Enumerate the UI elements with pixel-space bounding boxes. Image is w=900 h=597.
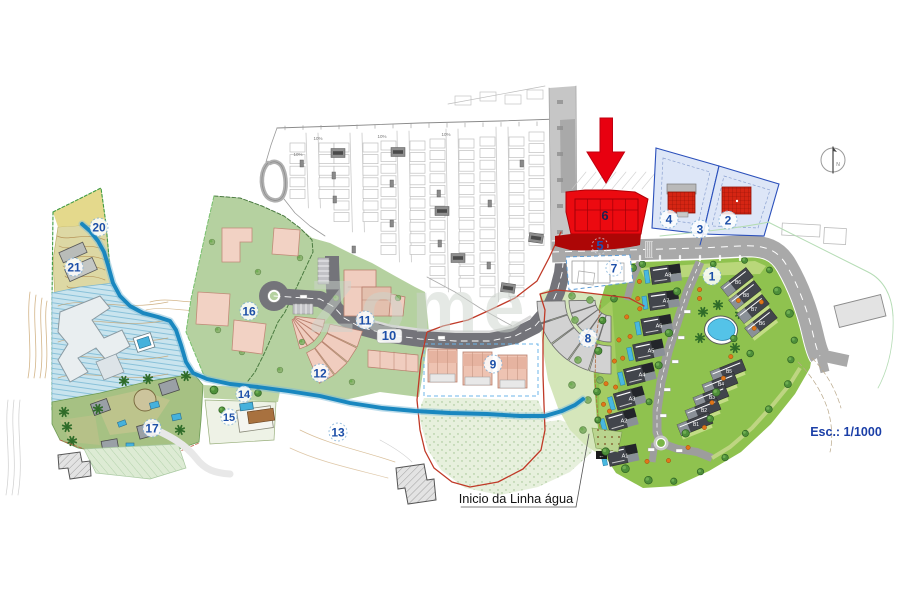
- svg-text:14: 14: [238, 389, 251, 401]
- svg-text:9: 9: [490, 357, 497, 371]
- svg-text:A2: A2: [621, 419, 628, 425]
- svg-text:A3: A3: [629, 397, 636, 403]
- svg-text:B1: B1: [693, 422, 699, 428]
- svg-text:B7: B7: [751, 307, 757, 313]
- svg-text:4: 4: [666, 212, 673, 226]
- svg-text:1: 1: [709, 269, 716, 283]
- svg-text:21: 21: [67, 260, 81, 274]
- svg-text:Zome: Zome: [309, 265, 530, 348]
- svg-text:10%: 10%: [377, 134, 386, 139]
- svg-text:A4: A4: [639, 373, 646, 379]
- svg-text:B6: B6: [759, 321, 765, 327]
- svg-text:10: 10: [382, 328, 396, 343]
- svg-text:B6: B6: [735, 280, 741, 286]
- svg-text:3: 3: [697, 222, 704, 236]
- svg-text:10%: 10%: [293, 152, 302, 157]
- svg-text:A5: A5: [648, 349, 655, 355]
- svg-text:A8: A8: [665, 273, 672, 279]
- svg-text:10%: 10%: [313, 136, 322, 141]
- svg-text:8: 8: [585, 331, 592, 345]
- svg-text:13: 13: [331, 425, 345, 439]
- svg-text:17: 17: [145, 421, 159, 435]
- svg-text:12: 12: [313, 366, 327, 380]
- svg-text:Inicio da Linha água: Inicio da Linha água: [459, 491, 574, 506]
- svg-text:10%: 10%: [441, 132, 450, 137]
- svg-text:16: 16: [242, 304, 256, 318]
- svg-text:A7: A7: [663, 299, 670, 305]
- svg-text:2: 2: [725, 213, 732, 227]
- svg-text:20: 20: [92, 220, 106, 234]
- svg-text:15: 15: [223, 412, 235, 424]
- svg-text:Esc.: 1/1000: Esc.: 1/1000: [810, 425, 882, 439]
- svg-text:11: 11: [359, 313, 372, 327]
- svg-text:N: N: [836, 162, 840, 168]
- svg-text:5: 5: [596, 238, 603, 253]
- svg-text:A1: A1: [622, 454, 629, 460]
- svg-text:A6: A6: [656, 324, 663, 330]
- svg-text:6: 6: [601, 208, 608, 223]
- svg-text:7: 7: [611, 261, 618, 275]
- svg-text:B8: B8: [743, 293, 749, 299]
